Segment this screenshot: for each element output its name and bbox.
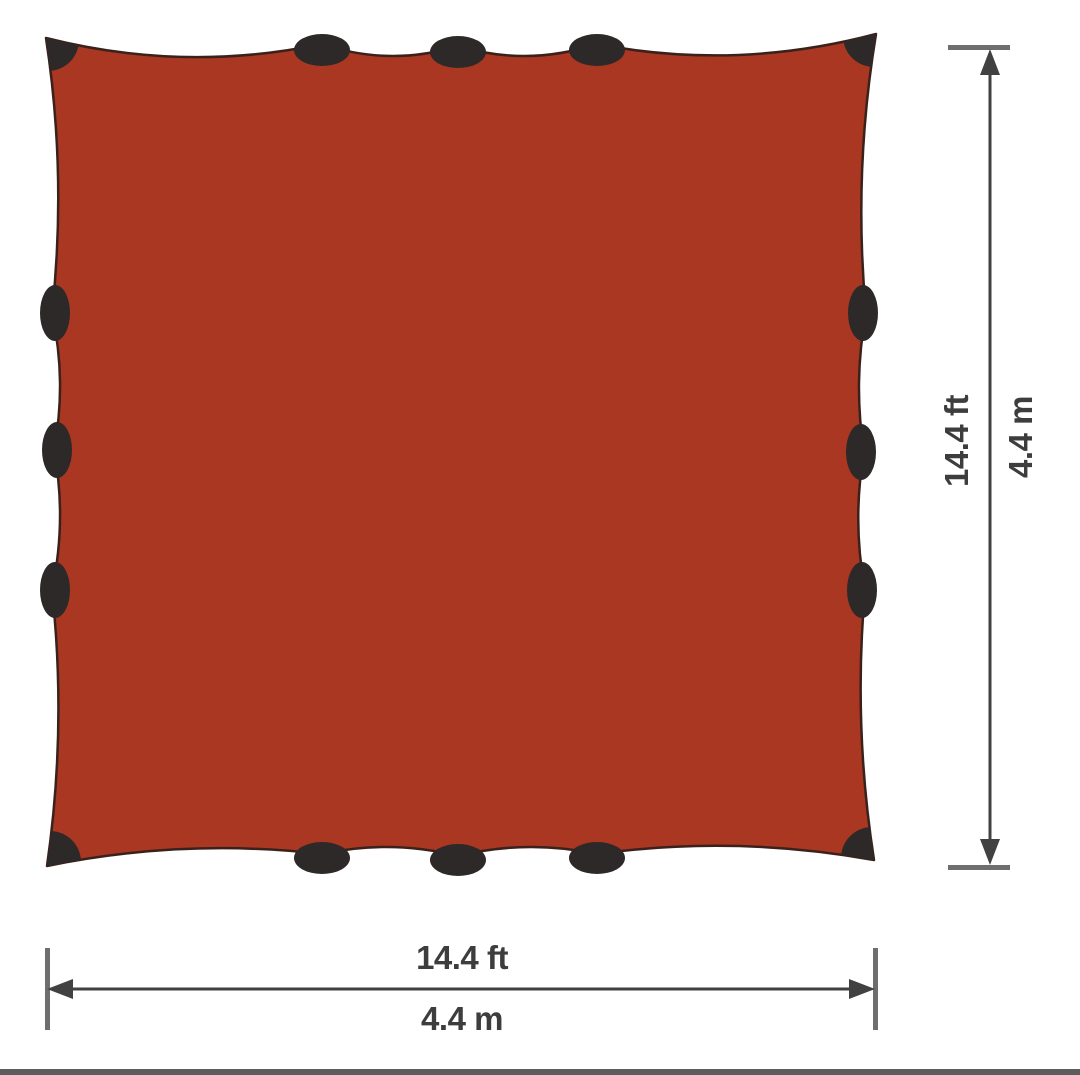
height-label-ft: 14.4 ft xyxy=(939,331,975,551)
attachment-tab xyxy=(847,562,877,618)
width-label-ft: 14.4 ft xyxy=(352,940,572,976)
product-dimension-diagram: 14.4 ft 4.4 m 14.4 ft 4.4 m xyxy=(0,0,1080,1075)
dimension-cap xyxy=(948,865,1010,870)
tarp-graphic xyxy=(0,0,1080,1075)
attachment-tab xyxy=(430,844,486,876)
attachment-tab xyxy=(294,842,350,874)
width-label-m: 4.4 m xyxy=(352,1001,572,1037)
attachment-tab xyxy=(569,34,625,66)
attachment-tab xyxy=(846,424,876,480)
dimension-cap xyxy=(948,45,1010,50)
attachment-tab xyxy=(848,285,878,341)
corner-patch xyxy=(17,9,79,71)
arrowhead-up xyxy=(980,49,1000,75)
attachment-tab xyxy=(569,842,625,874)
corner-patch xyxy=(843,5,905,67)
arrowhead-right xyxy=(849,979,875,999)
corner-patch xyxy=(841,827,903,889)
arrowhead-left xyxy=(47,979,73,999)
attachment-tab xyxy=(40,562,70,618)
arrowhead-down xyxy=(980,839,1000,865)
attachment-tab xyxy=(430,36,486,68)
tarp-shape xyxy=(46,34,876,866)
attachment-tab xyxy=(294,34,350,66)
attachment-tab xyxy=(42,422,72,478)
height-label-m: 4.4 m xyxy=(1003,327,1039,547)
page-bottom-divider xyxy=(0,1069,1080,1075)
attachment-tab xyxy=(40,285,70,341)
